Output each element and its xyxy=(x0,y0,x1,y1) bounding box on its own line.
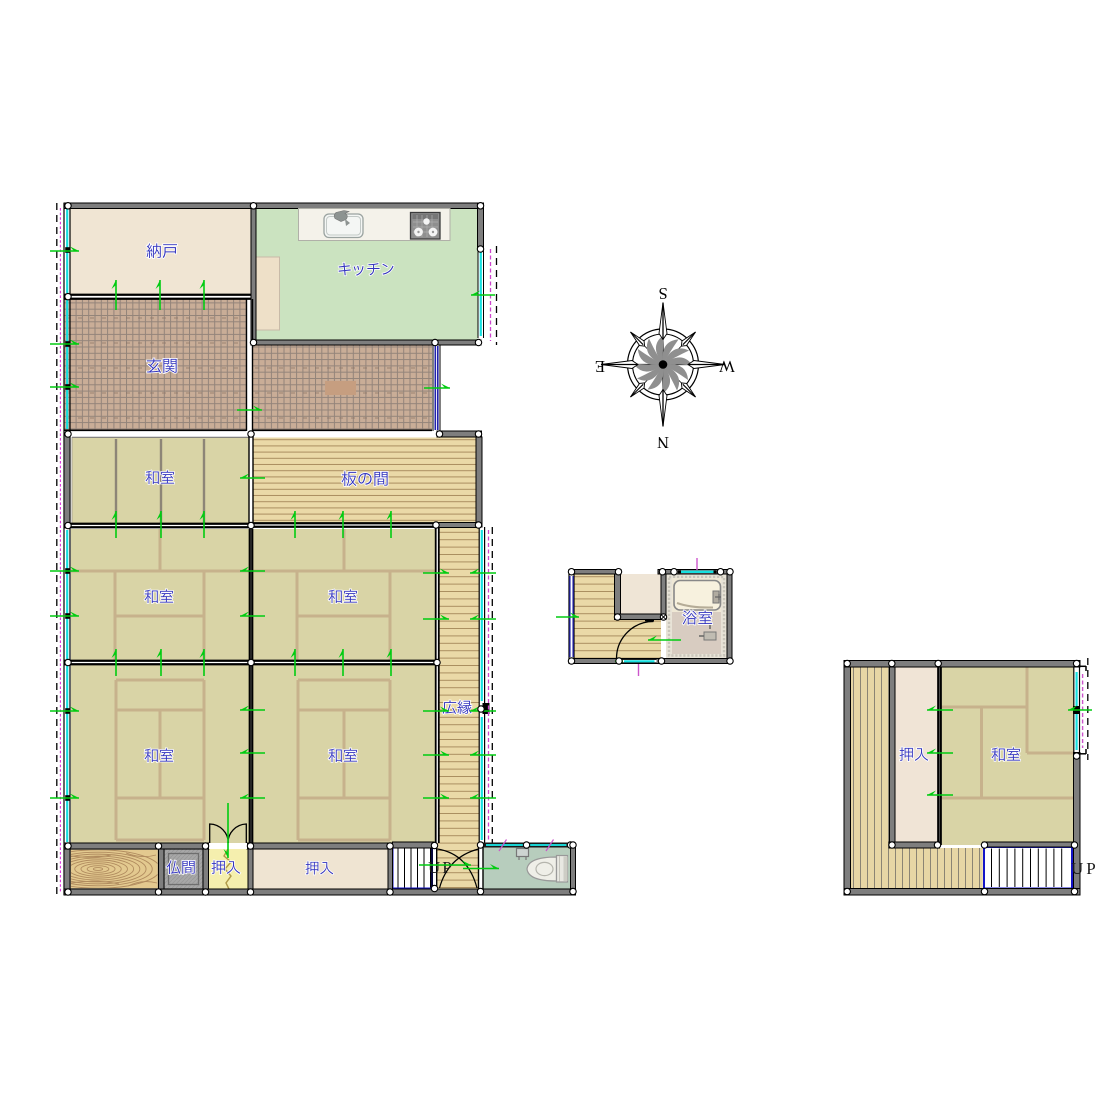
svg-text:UP: UP xyxy=(1071,859,1099,878)
svg-text:E: E xyxy=(595,357,605,376)
svg-text:UP: UP xyxy=(428,858,454,877)
svg-text:W: W xyxy=(719,357,735,376)
svg-text:S: S xyxy=(658,284,667,303)
svg-text:N: N xyxy=(657,433,669,452)
